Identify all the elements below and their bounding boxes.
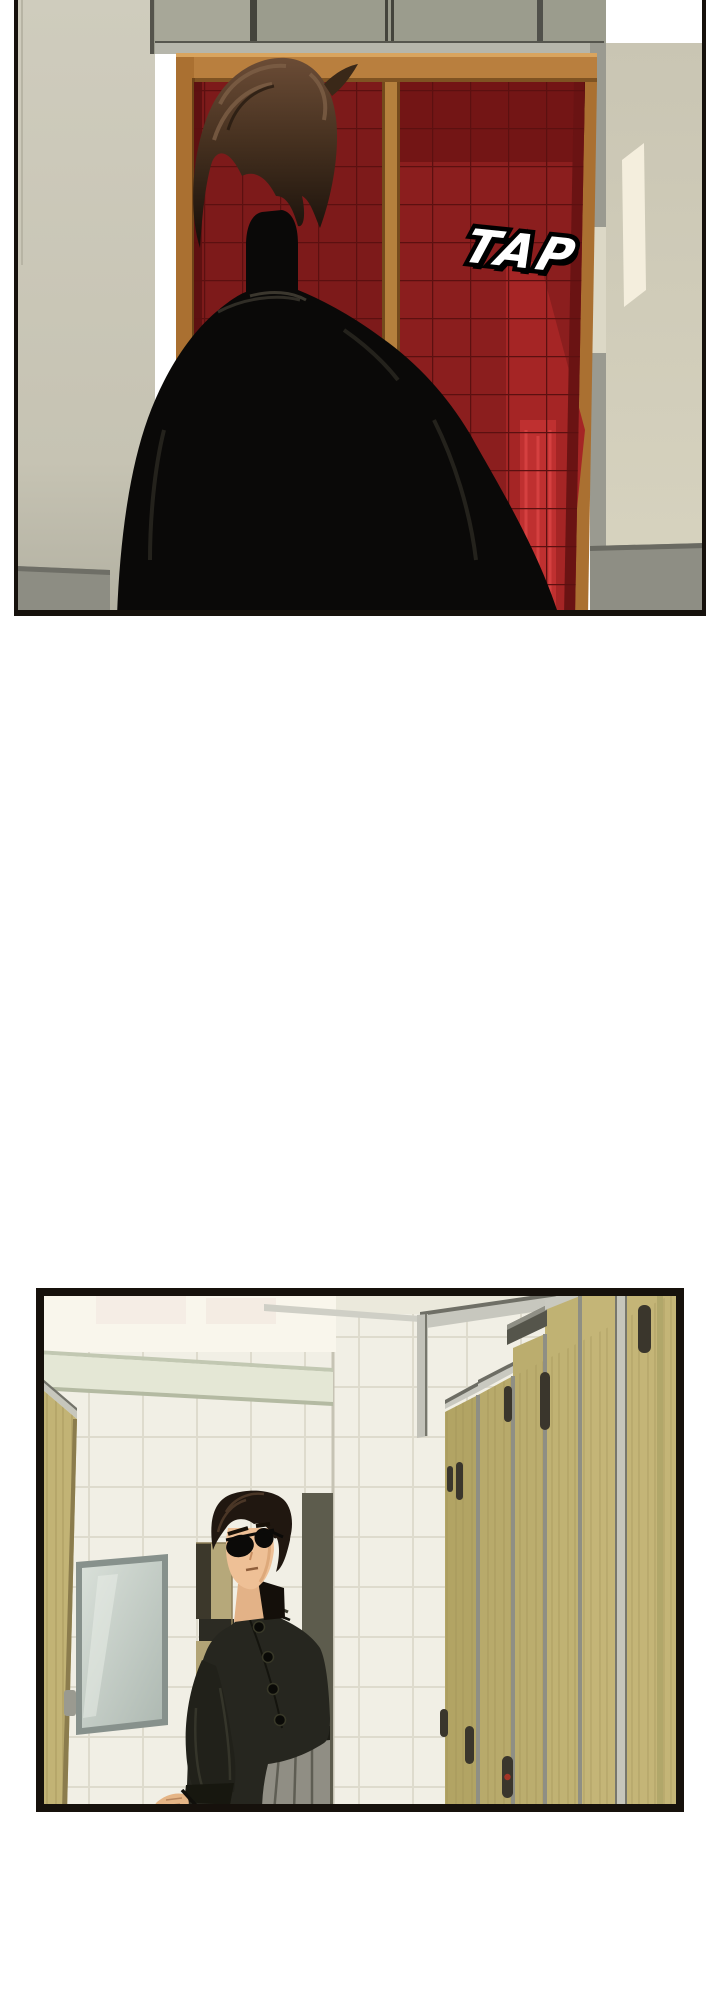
transom-window — [150, 0, 606, 54]
comic-panel-top: TAP TAP — [14, 0, 706, 616]
panel2-art — [36, 1288, 684, 1812]
comic-panel-bottom — [36, 1288, 684, 1812]
mirror — [76, 1554, 168, 1735]
right-wall — [590, 43, 706, 616]
vacancy-indicator — [504, 1774, 510, 1780]
webtoon-page: TAP TAP — [0, 0, 720, 2000]
light-patch — [622, 143, 646, 307]
hinge — [64, 1690, 76, 1716]
panel1-art — [14, 0, 706, 616]
